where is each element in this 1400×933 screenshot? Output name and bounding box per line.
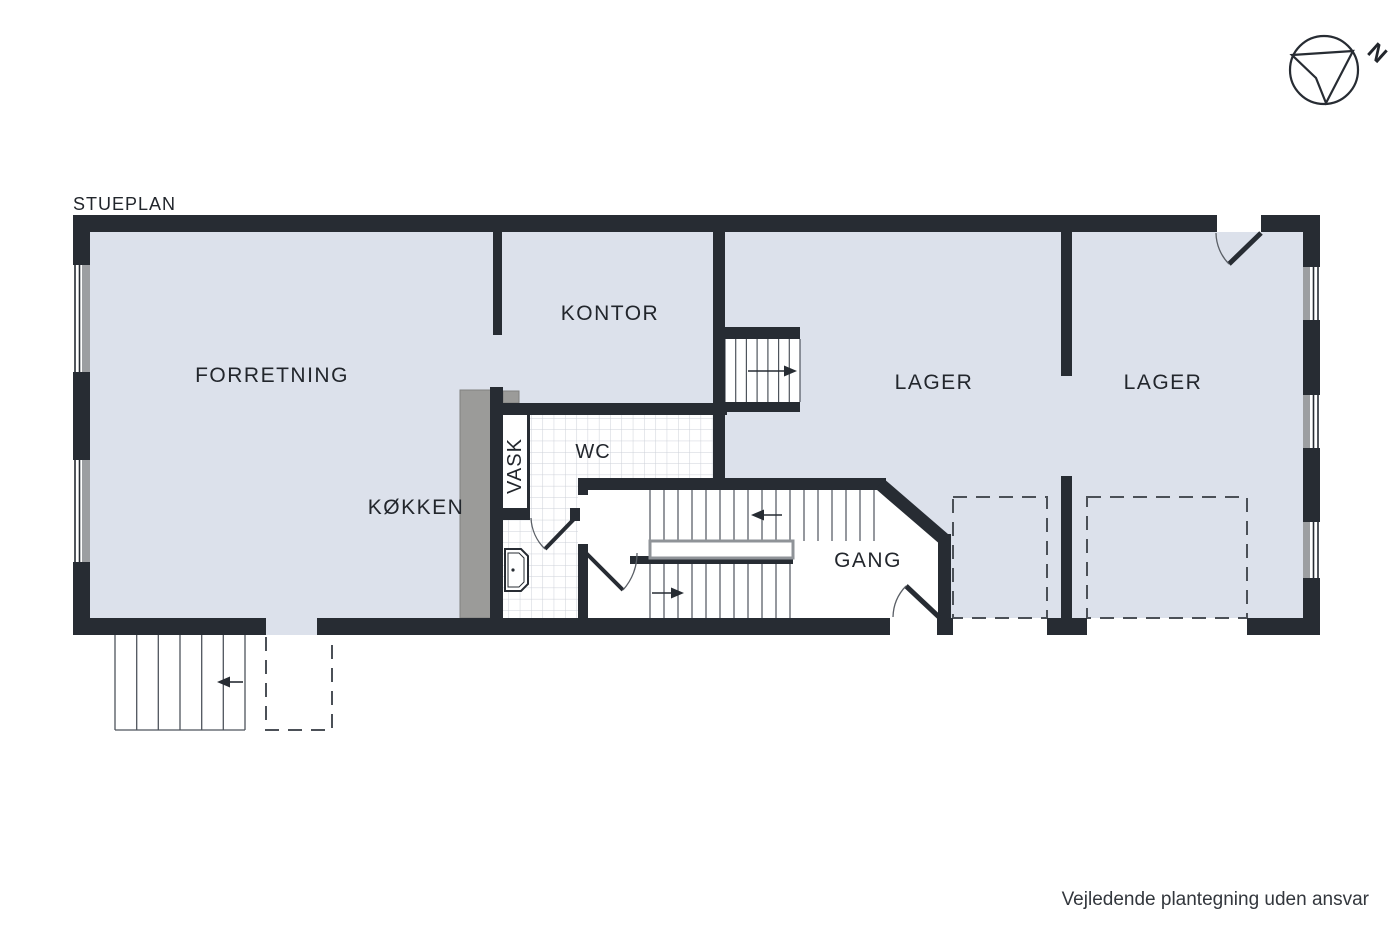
room-label-wc: WC: [575, 441, 610, 463]
wall-smallstair-top: [713, 327, 800, 339]
entrance-canopy-outline: [266, 637, 332, 730]
wall-kontor-left-stub: [493, 232, 502, 335]
room-label-lager-1: LAGER: [895, 371, 974, 394]
north-arrow-icon: N: [1290, 36, 1392, 104]
floorplan-page: STUEPLAN FORRETNING KONTOR VASK WC KØKKE…: [0, 0, 1400, 933]
room-label-forretning: FORRETNING: [195, 364, 349, 387]
window: [1303, 395, 1320, 448]
room-label-vask: VASK: [504, 438, 526, 494]
room-label-kontor: KONTOR: [561, 302, 659, 325]
wall-vask-stub: [490, 508, 530, 520]
stair-arrow-exterior: [217, 677, 243, 688]
room-label-lager-2: LAGER: [1124, 371, 1203, 394]
floor-entrance-gap: [266, 618, 317, 635]
stair-handrail: [630, 541, 793, 564]
wall-wc-top: [490, 403, 727, 415]
window: [1303, 267, 1320, 320]
wall-gang-right: [938, 534, 951, 618]
floorplan-drawing: STUEPLAN FORRETNING KONTOR VASK WC KØKKE…: [0, 0, 1400, 933]
floors: [90, 232, 1303, 635]
sink: [505, 549, 528, 591]
room-label-gang: GANG: [834, 549, 902, 572]
counter-return: [503, 391, 519, 403]
wall-lager-divider-upper: [1061, 232, 1072, 376]
wall-kitchen: [490, 387, 503, 618]
tiles-wc-strip: [530, 480, 578, 618]
handrail: [650, 541, 793, 558]
tiles-wc: [530, 415, 713, 480]
plan-title: STUEPLAN: [73, 194, 176, 214]
wall-gang-top: [578, 478, 886, 490]
window: [73, 460, 90, 562]
wall-vask-thin: [527, 415, 530, 508]
wall-lager-divider-lower: [1061, 476, 1072, 618]
room-label-koekken: KØKKEN: [368, 496, 465, 519]
window: [1303, 522, 1320, 578]
wall-kontor-right: [713, 232, 725, 480]
compass-north-label: N: [1363, 37, 1393, 67]
counter: [460, 390, 493, 618]
disclaimer-text: Vejledende plantegning uden ansvar: [1062, 889, 1370, 910]
window: [73, 265, 90, 372]
